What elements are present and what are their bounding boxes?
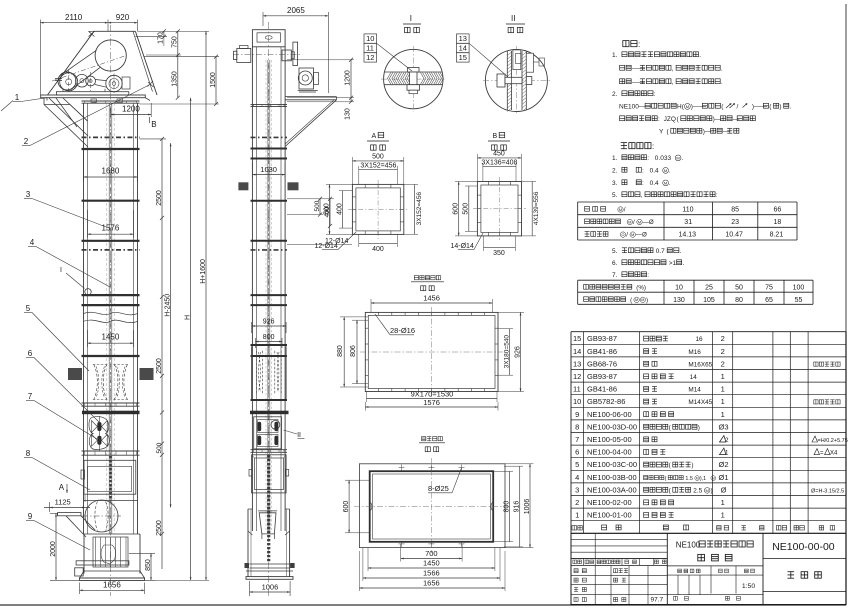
svg-text:916: 916 [514, 501, 521, 513]
svg-text:13: 13 [459, 34, 467, 43]
svg-text:II: II [511, 14, 515, 23]
svg-text:GB68-76: GB68-76 [587, 359, 617, 368]
svg-text:23: 23 [731, 219, 739, 226]
svg-text::: : [658, 116, 660, 123]
svg-text:3X152=456: 3X152=456 [360, 162, 396, 169]
svg-text:12: 12 [573, 372, 581, 381]
svg-text:1:50: 1:50 [742, 583, 755, 590]
svg-text:110: 110 [682, 207, 693, 214]
svg-text:=H/0.2+5.75: =H/0.2+5.75 [818, 438, 848, 444]
svg-text:1200: 1200 [122, 105, 140, 114]
svg-text:66: 66 [774, 207, 782, 214]
svg-text:8-Ø25: 8-Ø25 [428, 484, 449, 493]
svg-text:1: 1 [721, 410, 725, 419]
svg-text:—: — [723, 129, 730, 136]
svg-text:4: 4 [30, 238, 35, 247]
svg-text::: : [716, 192, 718, 199]
svg-text:——: —— [632, 66, 646, 73]
svg-text:800: 800 [503, 501, 510, 513]
svg-text:11: 11 [366, 44, 374, 53]
svg-text::: : [642, 168, 644, 175]
svg-text:=: = [820, 451, 824, 457]
svg-text:16: 16 [696, 336, 704, 343]
svg-text:,: , [641, 192, 643, 199]
svg-text:NE100-03C-00: NE100-03C-00 [587, 460, 637, 469]
svg-text:11: 11 [573, 385, 581, 394]
svg-text:1350: 1350 [171, 71, 178, 87]
svg-text:2: 2 [721, 334, 725, 343]
svg-text:)——: )—— [752, 104, 768, 111]
svg-text:M: M [664, 168, 667, 173]
svg-text:10: 10 [573, 397, 581, 406]
svg-text:350: 350 [493, 250, 505, 257]
svg-text:100: 100 [793, 285, 805, 292]
svg-text:.: . [721, 66, 723, 73]
svg-text:.: . [721, 79, 723, 86]
svg-text:NE100-02-00: NE100-02-00 [587, 498, 632, 507]
svg-text:1: 1 [721, 511, 725, 520]
svg-text:1656: 1656 [103, 581, 121, 590]
svg-text:): ) [691, 462, 693, 469]
svg-text:5.: 5. [612, 248, 618, 255]
svg-text:1566: 1566 [423, 569, 440, 578]
svg-text:3: 3 [575, 485, 579, 494]
svg-text:H-2450: H-2450 [164, 294, 171, 317]
svg-text:): ) [698, 424, 700, 431]
svg-text:JZQ: JZQ [664, 116, 676, 123]
svg-text:1: 1 [721, 498, 725, 507]
svg-text:14: 14 [690, 374, 698, 381]
svg-text:85: 85 [731, 207, 739, 214]
svg-text:920: 920 [116, 13, 130, 22]
svg-text:0.4: 0.4 [650, 180, 659, 187]
svg-text:1.: 1. [612, 52, 618, 59]
svg-text:>1: >1 [669, 260, 677, 267]
svg-text:3X136=408: 3X136=408 [481, 159, 517, 166]
svg-text:926: 926 [263, 319, 275, 326]
svg-text:II: II [297, 432, 301, 439]
svg-text:13: 13 [573, 359, 581, 368]
svg-text:M: M [696, 476, 699, 480]
svg-text:80: 80 [735, 297, 743, 304]
svg-text:Ø=H-3.15/2.5: Ø=H-3.15/2.5 [811, 488, 844, 494]
svg-text:1: 1 [575, 511, 579, 520]
svg-text:2: 2 [24, 137, 29, 146]
svg-text:926: 926 [514, 346, 521, 358]
svg-text:1500: 1500 [210, 72, 217, 88]
svg-text:NE100-01-00: NE100-01-00 [587, 511, 632, 520]
svg-text:6: 6 [575, 448, 579, 457]
svg-text:25: 25 [705, 285, 713, 292]
svg-text:.: . [790, 104, 792, 111]
svg-text:,: , [672, 79, 674, 86]
svg-text:10: 10 [675, 285, 683, 292]
svg-text:1125: 1125 [55, 498, 71, 507]
svg-text:1.: 1. [612, 155, 618, 162]
svg-text:8: 8 [26, 449, 31, 458]
svg-text:450: 450 [493, 150, 505, 157]
svg-text:M: M [619, 208, 622, 212]
svg-text:1: 1 [725, 450, 729, 457]
svg-text:5: 5 [575, 460, 579, 469]
svg-text:NE100-00-00: NE100-00-00 [772, 541, 835, 553]
svg-text::: : [654, 91, 656, 98]
svg-text:10: 10 [366, 34, 374, 43]
svg-text::: : [647, 272, 649, 279]
svg-text:4X139=556: 4X139=556 [533, 191, 540, 225]
svg-text:1030: 1030 [260, 165, 277, 174]
svg-text:750: 750 [171, 36, 178, 48]
svg-text:4: 4 [575, 473, 579, 482]
svg-text:1576: 1576 [423, 398, 440, 407]
svg-text:97.7: 97.7 [651, 597, 664, 604]
svg-text:—Ø: —Ø [643, 219, 654, 226]
svg-text:6.: 6. [612, 260, 618, 267]
svg-text:1: 1 [721, 397, 725, 406]
svg-text:H: H [184, 315, 191, 320]
svg-text:2: 2 [575, 498, 579, 507]
svg-text:3X180=540: 3X180=540 [503, 335, 510, 369]
svg-text:1200: 1200 [344, 70, 351, 86]
svg-text:,: , [672, 66, 674, 73]
svg-text:2: 2 [725, 437, 729, 444]
svg-text:Ø: Ø [721, 485, 727, 494]
svg-text:2500: 2500 [156, 520, 163, 536]
svg-text:400: 400 [372, 246, 384, 253]
svg-text:2: 2 [721, 347, 725, 356]
svg-text:(: ( [665, 476, 667, 482]
svg-text::: : [647, 155, 649, 162]
svg-text:15: 15 [459, 53, 467, 62]
svg-text:8.21: 8.21 [770, 232, 784, 239]
svg-text:M16X65: M16X65 [688, 361, 712, 368]
svg-text:1576: 1576 [102, 224, 120, 233]
svg-text:(%): (%) [636, 285, 646, 292]
svg-text:.: . [669, 180, 671, 187]
svg-text:.: . [669, 168, 671, 175]
svg-text:3: 3 [26, 190, 31, 199]
svg-text:0.033: 0.033 [655, 155, 672, 162]
svg-text:I: I [410, 14, 412, 23]
svg-text::: : [652, 142, 654, 151]
svg-text:NE100: NE100 [676, 540, 701, 549]
svg-text:55: 55 [795, 297, 803, 304]
svg-text:5.: 5. [612, 192, 618, 199]
svg-text:2500: 2500 [156, 358, 163, 374]
svg-text:18: 18 [774, 219, 782, 226]
svg-text:14-Ø14: 14-Ø14 [451, 243, 474, 250]
svg-text:105: 105 [703, 297, 715, 304]
svg-text:M: M [706, 488, 709, 493]
svg-text:1: 1 [15, 93, 20, 102]
svg-text:1450: 1450 [102, 333, 120, 342]
svg-text:1.5: 1.5 [685, 476, 693, 482]
svg-text:Ø3: Ø3 [719, 422, 729, 431]
svg-text:28-Ø16: 28-Ø16 [390, 326, 415, 335]
svg-text::: : [638, 40, 640, 49]
svg-text:H(: H( [677, 104, 685, 111]
svg-text:M16: M16 [688, 349, 701, 356]
svg-text:65: 65 [765, 297, 773, 304]
svg-text:Ø2: Ø2 [719, 460, 729, 469]
svg-text:500: 500 [372, 153, 384, 160]
svg-text:Ø1: Ø1 [719, 473, 729, 482]
svg-text:7: 7 [575, 435, 579, 444]
svg-text:NE100-03B-00: NE100-03B-00 [587, 473, 637, 482]
svg-text:GB93-87: GB93-87 [587, 334, 617, 343]
svg-text:500: 500 [156, 442, 163, 453]
svg-text:2500: 2500 [156, 190, 163, 206]
svg-text:NE100-04-00: NE100-04-00 [587, 448, 632, 457]
svg-text:1006: 1006 [262, 583, 279, 592]
svg-text:14: 14 [573, 347, 581, 356]
svg-text:M: M [628, 220, 631, 224]
svg-text:6: 6 [28, 349, 33, 358]
svg-text:.: . [683, 260, 685, 267]
svg-text:/: / [624, 207, 626, 214]
svg-text:M14X45: M14X45 [688, 399, 712, 406]
svg-text:M: M [631, 233, 634, 237]
svg-text:130: 130 [344, 108, 351, 120]
svg-text:400: 400 [336, 203, 343, 215]
svg-text:),1: ),1 [700, 476, 706, 482]
svg-text:2.5: 2.5 [693, 487, 702, 494]
svg-text:12-Ø14: 12-Ø14 [315, 243, 338, 250]
svg-text:——: —— [632, 79, 646, 86]
svg-text:NE100——: NE100—— [619, 104, 652, 111]
svg-text:NE100-03A-00: NE100-03A-00 [587, 485, 637, 494]
svg-text:500: 500 [463, 203, 470, 215]
svg-text:3X152=456: 3X152=456 [416, 192, 423, 226]
svg-text:M: M [686, 104, 689, 109]
svg-text:7: 7 [28, 392, 33, 401]
svg-text:)——: )—— [691, 104, 707, 111]
svg-text:9: 9 [575, 410, 579, 419]
svg-text:GB41-86: GB41-86 [587, 385, 617, 394]
svg-text:.: . [680, 248, 682, 255]
svg-text:.: . [681, 155, 683, 162]
svg-text:500: 500 [314, 200, 321, 211]
svg-text:M14: M14 [688, 387, 701, 394]
svg-text:NE100-05-00: NE100-05-00 [587, 435, 632, 444]
svg-text:1656: 1656 [423, 579, 440, 588]
svg-text::: : [642, 180, 644, 187]
svg-text:): ) [711, 487, 713, 494]
svg-text:M: M [641, 298, 644, 302]
svg-text:A: A [59, 483, 65, 492]
svg-text:700: 700 [425, 549, 438, 558]
svg-text:1680: 1680 [102, 167, 120, 176]
svg-text:H+1600: H+1600 [200, 259, 207, 284]
svg-text:2.: 2. [612, 168, 618, 175]
svg-text:600: 600 [343, 501, 350, 513]
svg-text:7.: 7. [612, 272, 618, 279]
svg-text:M: M [676, 155, 679, 160]
svg-text:1: 1 [721, 372, 725, 381]
svg-text:M: M [712, 476, 715, 480]
svg-text:X4: X4 [830, 451, 838, 457]
svg-text:0.4: 0.4 [650, 168, 659, 175]
svg-text:0.7: 0.7 [656, 248, 665, 255]
svg-text:A: A [372, 133, 377, 140]
svg-text:130: 130 [673, 297, 685, 304]
svg-text:GB93-87: GB93-87 [587, 372, 617, 381]
svg-text:/: / [626, 232, 628, 239]
svg-text:2: 2 [721, 359, 725, 368]
svg-text:GB41-86: GB41-86 [587, 347, 617, 356]
svg-text:850: 850 [145, 559, 152, 571]
svg-text:14.13: 14.13 [679, 232, 697, 239]
svg-text:/: / [633, 219, 635, 226]
svg-text:B: B [493, 133, 498, 140]
svg-text:800: 800 [263, 334, 275, 341]
svg-text:NE100-03D-00: NE100-03D-00 [587, 422, 637, 431]
svg-text:8: 8 [575, 422, 579, 431]
svg-text:M: M [635, 298, 638, 302]
svg-text:.: . [699, 52, 701, 59]
svg-text:880: 880 [337, 345, 344, 357]
svg-text:3.: 3. [612, 180, 618, 187]
svg-text:—: — [733, 116, 740, 123]
svg-text:12: 12 [366, 53, 374, 62]
svg-text:75: 75 [765, 285, 773, 292]
svg-text:2065: 2065 [287, 6, 305, 15]
svg-text:B: B [151, 120, 156, 129]
svg-text:/: / [737, 104, 739, 111]
svg-text:600: 600 [453, 203, 460, 215]
svg-text:31: 31 [684, 219, 692, 226]
svg-text:50: 50 [735, 285, 743, 292]
svg-text:1456: 1456 [423, 294, 440, 303]
svg-text:1006: 1006 [524, 499, 531, 515]
svg-text:NE100-06-00: NE100-06-00 [587, 410, 632, 419]
svg-text:GB5782-86: GB5782-86 [587, 397, 625, 406]
svg-text:I: I [60, 267, 62, 274]
svg-text:—Ø: —Ø [636, 232, 647, 239]
svg-text:806: 806 [350, 345, 357, 357]
svg-text:2.: 2. [612, 91, 618, 98]
svg-text:Y: Y [659, 129, 664, 136]
svg-text:5: 5 [26, 304, 31, 313]
svg-text:170: 170 [158, 32, 165, 44]
svg-text:1: 1 [721, 385, 725, 394]
svg-text:15: 15 [573, 334, 581, 343]
svg-text:10.47: 10.47 [725, 232, 743, 239]
svg-text:): ) [646, 297, 648, 304]
svg-text:M: M [664, 180, 667, 185]
svg-text:14: 14 [459, 44, 467, 53]
svg-text:O: O [622, 233, 625, 237]
svg-text:500: 500 [323, 203, 330, 215]
svg-text:): ) [779, 104, 781, 111]
svg-text:1450: 1450 [423, 559, 440, 568]
svg-text:9: 9 [28, 512, 33, 521]
svg-text:2000: 2000 [50, 541, 57, 557]
svg-text:2110: 2110 [65, 13, 83, 22]
svg-text:M: M [638, 220, 641, 224]
